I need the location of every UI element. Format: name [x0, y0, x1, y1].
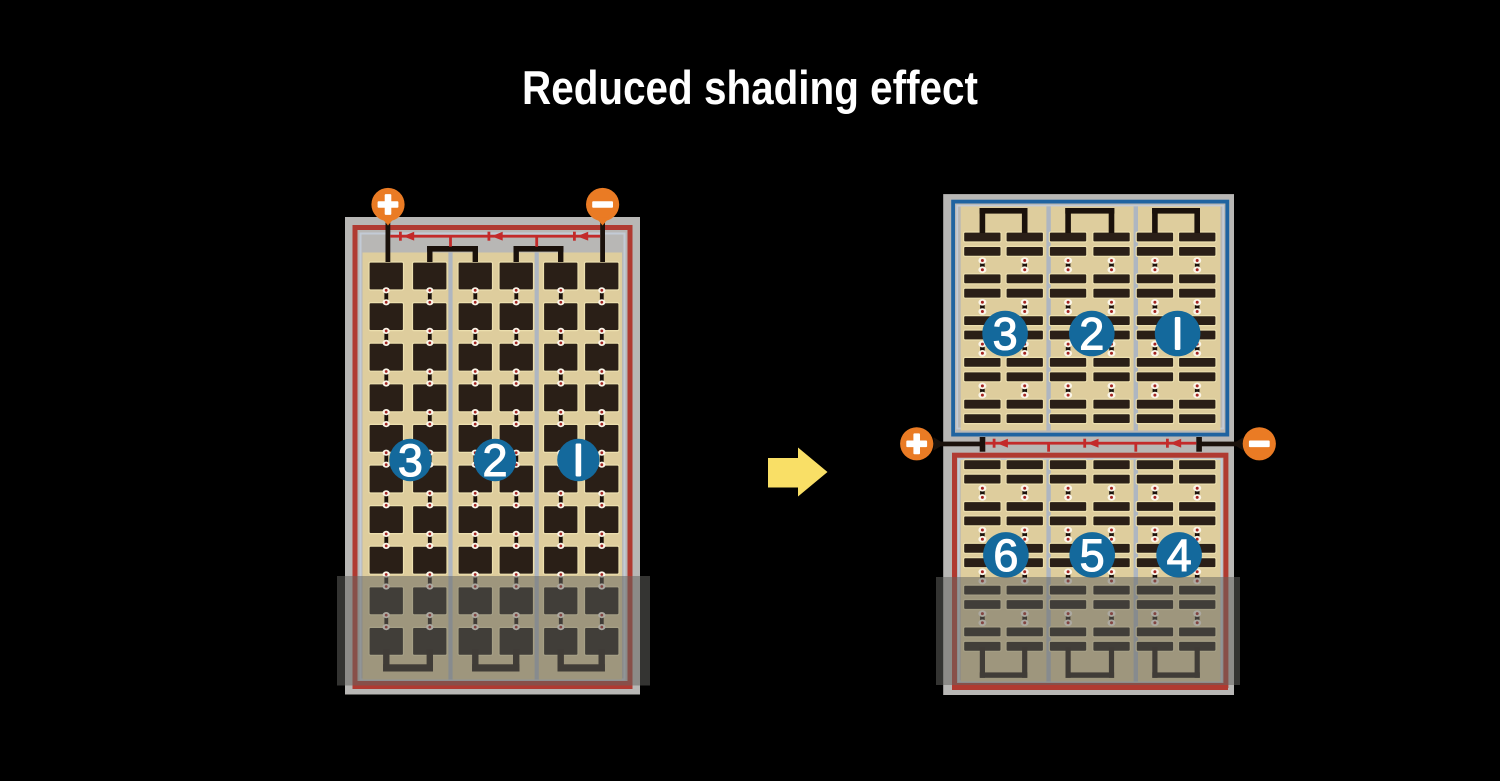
svg-text:3: 3	[993, 309, 1018, 360]
svg-text:2: 2	[482, 435, 507, 486]
svg-text:3: 3	[398, 435, 423, 486]
svg-text:2: 2	[1079, 309, 1104, 360]
svg-text:6: 6	[993, 530, 1018, 581]
svg-text:4: 4	[1167, 530, 1192, 581]
svg-text:5: 5	[1080, 530, 1105, 581]
